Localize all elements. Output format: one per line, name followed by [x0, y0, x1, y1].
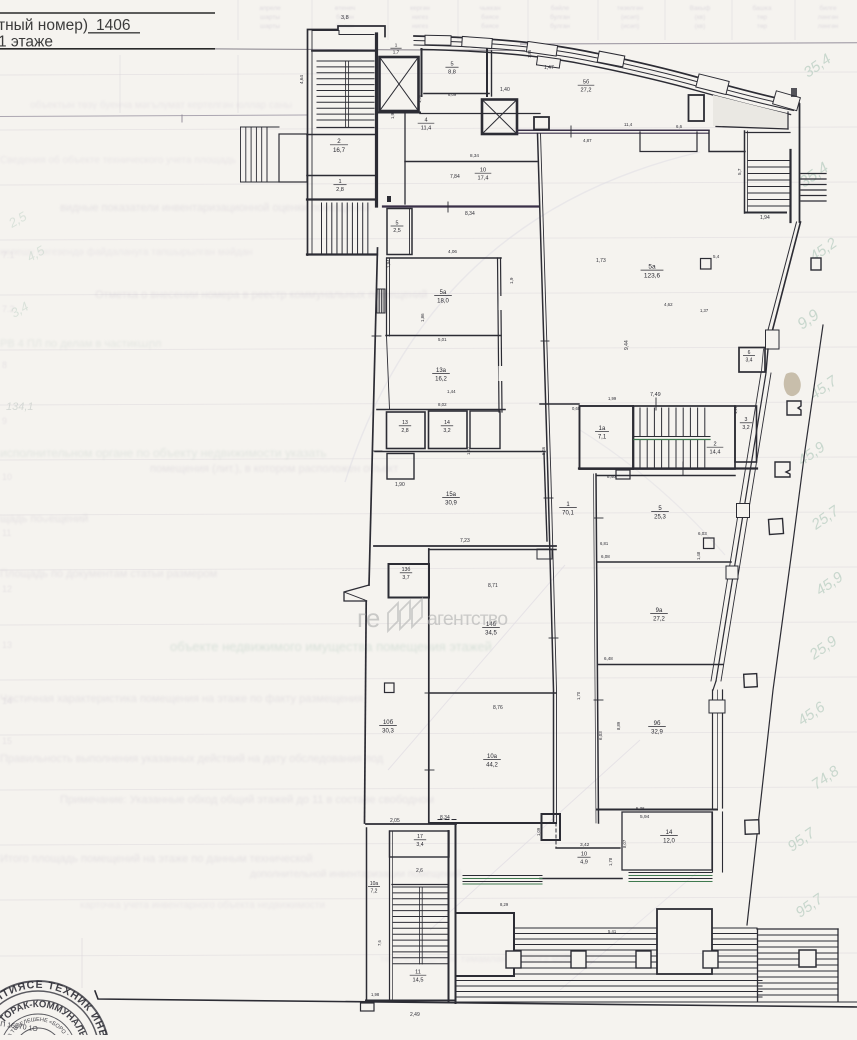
- svg-text:17: 17: [417, 834, 423, 840]
- svg-text:1 этаже: 1 этаже: [0, 34, 53, 51]
- svg-text:27,2: 27,2: [653, 616, 665, 622]
- svg-text:помещения (лит.), в котором ра: помещения (лит.), в котором расположен о…: [150, 463, 398, 475]
- svg-text:нигез: нигез: [412, 14, 428, 21]
- svg-text:3,8: 3,8: [341, 15, 349, 21]
- svg-text:6,6: 6,6: [676, 124, 683, 129]
- svg-text:123,6: 123,6: [644, 272, 661, 279]
- svg-text:7.1: 7.1: [2, 250, 15, 260]
- svg-text:17,4: 17,4: [478, 176, 489, 182]
- svg-text:1,56: 1,56: [417, 94, 422, 103]
- svg-text:1,44: 1,44: [447, 389, 456, 394]
- svg-text:2,5: 2,5: [393, 228, 401, 234]
- svg-text:9а: 9а: [656, 608, 663, 614]
- svg-text:11: 11: [415, 970, 421, 976]
- svg-text:6,48: 6,48: [604, 656, 613, 661]
- svg-text:11: 11: [2, 528, 11, 538]
- svg-text:1,57: 1,57: [466, 446, 471, 455]
- svg-text:8,89: 8,89: [616, 721, 621, 730]
- svg-text:Правильность выполнения указан: Правильность выполнения указанных действ…: [0, 753, 384, 765]
- svg-text:Отметка о внесении номера в ре: Отметка о внесении номера в реестр комму…: [95, 289, 427, 301]
- svg-text:16,7: 16,7: [333, 147, 346, 154]
- svg-text:Итого площадь помещений на эта: Итого площадь помещений на этаже по данн…: [0, 853, 313, 865]
- svg-text:объектын төзү буенча мәгълүмат: объектын төзү буенча мәгълүмат кертелгән…: [30, 99, 292, 111]
- svg-text:(кв): (кв): [695, 23, 706, 30]
- svg-text:төр: төр: [757, 14, 768, 21]
- svg-text:1,37: 1,37: [700, 308, 709, 313]
- svg-text:4,62: 4,62: [664, 302, 673, 307]
- svg-text:10б: 10б: [383, 720, 394, 726]
- svg-text:3,2: 3,2: [742, 425, 749, 431]
- svg-text:2,8: 2,8: [401, 428, 408, 434]
- svg-text:8,29: 8,29: [500, 902, 509, 907]
- svg-text:10а: 10а: [370, 881, 379, 887]
- svg-text:10а: 10а: [487, 754, 498, 760]
- svg-text:7,2: 7,2: [371, 888, 378, 894]
- svg-text:8,09: 8,09: [448, 92, 457, 97]
- svg-text:13б: 13б: [402, 567, 411, 573]
- svg-text:Сведения об объекте техническо: Сведения об объекте технического учета п…: [0, 154, 236, 166]
- svg-text:10: 10: [2, 472, 12, 482]
- svg-text:1,47: 1,47: [544, 65, 554, 71]
- svg-text:30,9: 30,9: [445, 500, 457, 506]
- svg-text:5,01: 5,01: [438, 337, 447, 342]
- svg-text:44,2: 44,2: [486, 762, 498, 768]
- svg-text:ләнгән: ләнгән: [818, 14, 839, 21]
- svg-text:13: 13: [402, 420, 408, 426]
- svg-text:134,1: 134,1: [6, 401, 34, 413]
- svg-text:6: 6: [748, 350, 751, 356]
- svg-text:2,8: 2,8: [336, 187, 344, 193]
- svg-text:5,36: 5,36: [636, 806, 645, 811]
- svg-text:14,5: 14,5: [413, 978, 424, 984]
- svg-text:бәясе: бәясе: [481, 22, 499, 30]
- svg-text:1,90: 1,90: [395, 482, 405, 488]
- svg-text:4,64: 4,64: [299, 75, 304, 84]
- svg-text:9: 9: [2, 416, 7, 426]
- svg-text:1,40: 1,40: [500, 87, 510, 93]
- svg-text:2,49: 2,49: [410, 1012, 420, 1018]
- svg-text:чыккан: чыккан: [479, 5, 501, 12]
- svg-text:ге: ге: [357, 603, 380, 633]
- svg-text:5,94: 5,94: [640, 814, 650, 820]
- svg-text:1,70: 1,70: [576, 691, 581, 700]
- svg-text:30,3: 30,3: [382, 728, 394, 734]
- svg-text:1,7: 1,7: [393, 50, 400, 55]
- svg-text:агентство: агентство: [427, 608, 508, 630]
- svg-text:18,0: 18,0: [437, 298, 449, 304]
- svg-text:8,07: 8,07: [622, 839, 627, 848]
- svg-text:14: 14: [444, 420, 450, 426]
- svg-text:6,03: 6,03: [598, 731, 603, 740]
- svg-text:(исәп): (исәп): [621, 14, 639, 21]
- svg-text:кергән: кергән: [410, 5, 430, 12]
- svg-text:төзелгән: төзелгән: [617, 5, 644, 12]
- svg-text:13а: 13а: [436, 368, 447, 374]
- svg-text:шарты: шарты: [260, 14, 280, 21]
- svg-text:70,1: 70,1: [562, 510, 574, 516]
- svg-text:8,34: 8,34: [440, 815, 450, 821]
- svg-text:видные показатели инвентаризац: видные показатели инвентаризационной оце…: [60, 202, 370, 214]
- svg-text:1406: 1406: [96, 17, 130, 34]
- svg-text:5б: 5б: [583, 80, 589, 86]
- svg-text:3,2: 3,2: [443, 428, 450, 434]
- svg-text:РВ 4 ПЛ по делам в частикարп: РВ 4 ПЛ по делам в частикարп: [0, 338, 161, 350]
- svg-text:(кв): (кв): [695, 14, 706, 21]
- svg-text:7,49: 7,49: [650, 392, 661, 398]
- svg-text:щадь поမещений: щадь поမещений: [0, 513, 88, 525]
- svg-text:8,71: 8,71: [488, 583, 498, 589]
- svg-text:27,2: 27,2: [581, 88, 592, 94]
- svg-text:6,08: 6,08: [601, 554, 610, 559]
- svg-text:8,34: 8,34: [470, 153, 479, 158]
- svg-text:5а: 5а: [648, 264, 656, 271]
- svg-text:25,3: 25,3: [654, 514, 666, 520]
- svg-text:нигез: нигез: [412, 23, 428, 30]
- svg-text:5,46: 5,46: [541, 446, 546, 455]
- svg-text:2: 2: [713, 442, 716, 448]
- svg-text:15а: 15а: [446, 492, 457, 498]
- svg-text:5,4: 5,4: [713, 254, 720, 259]
- svg-text:8,76: 8,76: [493, 705, 503, 711]
- svg-text:14: 14: [2, 696, 12, 706]
- svg-text:8,34: 8,34: [465, 211, 475, 217]
- svg-text:1,48: 1,48: [696, 551, 701, 560]
- svg-text:3: 3: [745, 417, 748, 423]
- svg-text:тный номер): тный номер): [0, 17, 88, 34]
- svg-text:булган: булган: [550, 13, 570, 21]
- svg-text:Вакыф: Вакыф: [690, 5, 711, 12]
- svg-text:ләнгән: ләнгән: [818, 23, 839, 30]
- svg-text:исполнительном органе по объек: исполнительном органе по объекту недвижи…: [0, 446, 327, 460]
- svg-text:5а: 5а: [440, 290, 447, 296]
- svg-text:карточка учета инвентарного об: карточка учета инвентарного объекта недв…: [80, 899, 325, 911]
- svg-text:32,9: 32,9: [651, 729, 663, 735]
- svg-text:1,09: 1,09: [536, 827, 541, 836]
- svg-text:төр: төр: [757, 23, 768, 30]
- svg-text:0,68: 0,68: [572, 406, 581, 411]
- svg-text:Частичная характеристика помещ: Частичная характеристика помещения на эт…: [0, 693, 363, 705]
- svg-text:1,99: 1,99: [608, 396, 617, 401]
- svg-text:1,9: 1,9: [509, 277, 514, 284]
- svg-text:3,4: 3,4: [746, 357, 753, 363]
- svg-text:4,87: 4,87: [583, 138, 592, 143]
- svg-text:11,4: 11,4: [624, 122, 633, 127]
- svg-text:5,7: 5,7: [737, 168, 742, 175]
- svg-text:13: 13: [2, 640, 12, 650]
- svg-text:1,86: 1,86: [527, 49, 532, 58]
- svg-text:8,8: 8,8: [448, 70, 456, 76]
- svg-text:1,78: 1,78: [608, 857, 613, 866]
- svg-text:өтенеч: өтенеч: [335, 5, 356, 12]
- svg-text:5,41: 5,41: [608, 929, 617, 934]
- svg-text:11,4: 11,4: [421, 126, 431, 132]
- svg-text:булган: булган: [550, 22, 570, 30]
- svg-text:3,4: 3,4: [416, 842, 423, 848]
- svg-text:шарты: шарты: [260, 23, 280, 30]
- svg-text:1,28: 1,28: [733, 405, 738, 414]
- svg-text:8,40: 8,40: [607, 474, 616, 479]
- svg-text:8: 8: [2, 360, 7, 370]
- svg-text:10: 10: [581, 852, 587, 858]
- svg-text:8,02: 8,02: [438, 402, 447, 407]
- svg-text:34,5: 34,5: [485, 630, 497, 636]
- svg-text:билге: билге: [820, 4, 837, 12]
- svg-text:10: 10: [480, 168, 486, 174]
- svg-text:1,96: 1,96: [390, 110, 395, 119]
- svg-text:6,03: 6,03: [698, 531, 707, 536]
- svg-text:2,6: 2,6: [416, 868, 423, 874]
- svg-text:12,0: 12,0: [663, 838, 675, 844]
- svg-text:башка: башка: [752, 4, 771, 12]
- svg-text:6,81: 6,81: [600, 541, 609, 546]
- svg-text:бәйле: бәйле: [551, 4, 570, 12]
- svg-text:1,94: 1,94: [760, 215, 770, 221]
- svg-text:1а: 1а: [599, 426, 606, 432]
- svg-text:5: 5: [396, 220, 399, 226]
- svg-text:14: 14: [666, 830, 673, 836]
- svg-text:4,9: 4,9: [580, 860, 588, 866]
- svg-text:3,42: 3,42: [580, 842, 590, 848]
- svg-text:7,23: 7,23: [460, 538, 470, 544]
- svg-text:3,7: 3,7: [402, 575, 409, 581]
- svg-text:бәясе: бәясе: [481, 13, 499, 21]
- svg-text:1: 1: [395, 43, 398, 48]
- svg-text:1,86: 1,86: [420, 313, 425, 322]
- svg-text:объекте недвижимого имущества: объекте недвижимого имущества помещения …: [170, 639, 492, 654]
- svg-text:14,4: 14,4: [710, 450, 721, 456]
- svg-text:12: 12: [2, 584, 12, 594]
- svg-text:дополнительной инвентаризации: дополнительной инвентаризации помещений: [250, 869, 461, 880]
- svg-text:7,1: 7,1: [598, 434, 607, 440]
- svg-text:9,44: 9,44: [624, 340, 630, 350]
- svg-text:(исәп): (исәп): [621, 23, 639, 30]
- svg-text:Примечание: Указанные обход об: Примечание: Указанные обход общий этажей…: [60, 794, 434, 806]
- svg-text:15: 15: [2, 736, 12, 746]
- svg-text:Площадь по документам статьи р: Площадь по документам статьи размером: [0, 568, 217, 580]
- svg-text:1,73: 1,73: [596, 258, 606, 264]
- svg-text:4: 4: [424, 118, 427, 124]
- svg-text:апреле: апреле: [259, 5, 281, 12]
- svg-text:7,84: 7,84: [450, 174, 460, 180]
- svg-text:9б: 9б: [654, 721, 661, 727]
- svg-text:5: 5: [450, 62, 453, 68]
- svg-text:1,98: 1,98: [371, 992, 380, 997]
- svg-text:7,6: 7,6: [377, 940, 382, 946]
- svg-text:16,2: 16,2: [435, 376, 447, 382]
- svg-text:4,06: 4,06: [448, 249, 457, 254]
- svg-text:2: 2: [337, 138, 341, 145]
- svg-text:1: 1: [338, 179, 341, 185]
- svg-text:1,94: 1,94: [386, 259, 391, 268]
